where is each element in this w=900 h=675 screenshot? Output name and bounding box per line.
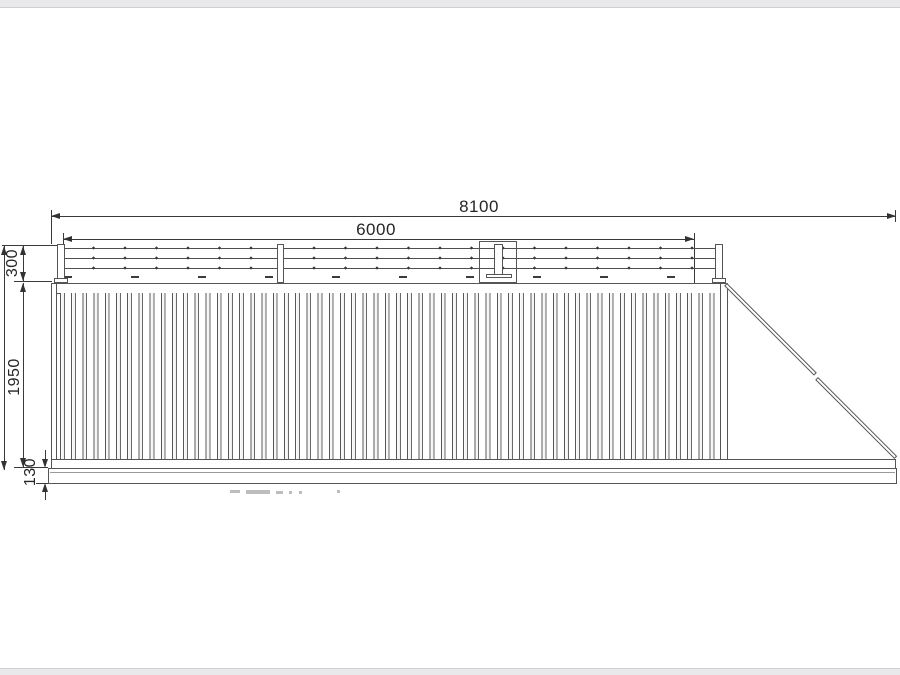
dim-overall-height-arrow-bottom — [1, 461, 7, 470]
guard-wire-barbs-row-3 — [60, 266, 720, 270]
guard-wire-barbs-row-1 — [60, 246, 720, 250]
guard-post-middle — [277, 244, 284, 283]
tail-brace-lower-segment — [815, 377, 897, 459]
watermark-fragment — [299, 491, 302, 494]
bottom-chrome-strip — [0, 668, 900, 675]
dim-130-line-upper — [45, 450, 46, 459]
dim-8100-ext-right — [895, 210, 896, 222]
watermark-fragment — [276, 491, 283, 494]
gate-left-post — [51, 283, 57, 460]
watermark-fragment — [246, 490, 270, 494]
dim-1950-label: 1950 — [6, 345, 24, 409]
dim-overall-height-label-clipped: 2380 — [0, 320, 5, 384]
dim-130-arrow-bottom — [42, 483, 48, 492]
dim-130-line-lower — [45, 492, 46, 500]
dim-8100-label: 8100 — [429, 197, 529, 217]
guard-wire-barbs-row-2 — [60, 256, 720, 260]
track-beam-edge-line — [50, 472, 895, 473]
dim-8100-arrow-left — [51, 213, 60, 219]
drawing-canvas: 8100 6000 2380 300 1950 130 — [0, 0, 900, 675]
guard-bracket-bar — [494, 244, 503, 275]
top-chrome-strip — [0, 0, 900, 8]
track-beam — [48, 468, 897, 484]
dim-8100-ext-left — [51, 210, 52, 244]
dim-6000-arrow-right — [685, 236, 694, 242]
dim-130-arrow-top — [42, 459, 48, 468]
tail-brace-upper-segment — [724, 283, 817, 376]
dim-1950-arrow-top — [20, 283, 26, 292]
watermark-fragment — [289, 491, 292, 494]
dim-6000-ext-left — [63, 233, 64, 244]
gate-pickets — [60, 293, 720, 459]
watermark-fragment — [230, 490, 240, 493]
dim-130-label: 130 — [22, 440, 40, 504]
guard-bracket-baseplate — [486, 274, 512, 278]
dim-6000-arrow-left — [63, 236, 72, 242]
gate-right-post — [720, 283, 728, 460]
watermark-fragment — [337, 490, 340, 493]
guard-clamp-dashes — [64, 276, 722, 278]
dim-6000-label: 6000 — [326, 220, 426, 240]
